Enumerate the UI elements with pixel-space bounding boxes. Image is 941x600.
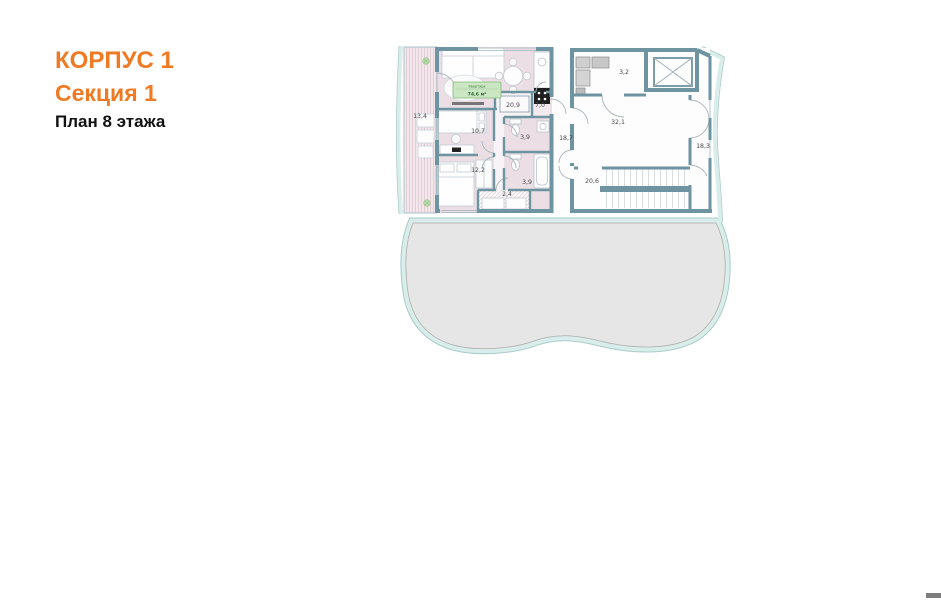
closet-shelves-icon	[482, 198, 526, 209]
plant-icon-top	[423, 58, 429, 64]
room-area-label-utility: 3,2	[619, 69, 629, 76]
apartment-badge[interactable]: Квартира 74,6 м²	[453, 82, 501, 98]
room-area-label-bathroom-1: 3,9	[520, 134, 530, 141]
stairs-icon	[600, 169, 690, 208]
elevator-icon	[654, 58, 692, 86]
room-area-label-corridor-left: 18,7	[559, 135, 573, 142]
room-area-label-wardrobe: 2,4	[502, 191, 512, 198]
apartment-badge-title: Квартира	[468, 85, 485, 89]
section-title: Секция 1	[55, 82, 174, 105]
sink-icon	[537, 121, 549, 132]
floor-plan-drawing: 13,4 20,9 7,0 10,7 3,9 12,2 3,9 2,4 18,7…	[395, 40, 745, 380]
apartment-badge-area: 74,6 м²	[468, 92, 487, 98]
room-area-label-bedroom-2: 12,2	[471, 167, 485, 174]
sofa-icon	[442, 48, 504, 78]
room-area-label-corridor-right: 18,3	[696, 143, 710, 150]
bathtub-icon	[534, 154, 550, 188]
building-title: КОРПУС 1	[55, 49, 174, 73]
room-area-label-elevator-hall: 32,1	[611, 119, 625, 126]
wardrobe-icon	[476, 160, 492, 188]
room-area-label-living-room: 20,9	[506, 102, 520, 109]
room-area-label-stairwell: 20,6	[585, 178, 599, 185]
terrace-surface	[406, 223, 725, 349]
bed-double-icon	[438, 162, 474, 206]
terrace-outline	[406, 223, 725, 349]
kitchen-counter-icon	[534, 52, 550, 104]
room-area-label-bedroom-1: 10,7	[471, 128, 485, 135]
room-area-label-balcony: 13,4	[413, 113, 427, 120]
floor-plan-page: КОРПУС 1 Секция 1 План 8 этажа	[0, 0, 941, 600]
room-area-label-bathroom-2: 3,9	[522, 179, 532, 186]
floor-title: План 8 этажа	[55, 113, 174, 130]
tv-console-icon	[452, 102, 484, 105]
facade-band-left	[396, 46, 401, 214]
plant-icon-bottom	[424, 200, 430, 206]
plan-header: КОРПУС 1 Секция 1 План 8 этажа	[55, 49, 174, 130]
page-corner-mark	[926, 593, 941, 598]
room-area-label-kitchen: 7,0	[535, 102, 545, 109]
balcony-furniture-icon	[417, 114, 434, 158]
